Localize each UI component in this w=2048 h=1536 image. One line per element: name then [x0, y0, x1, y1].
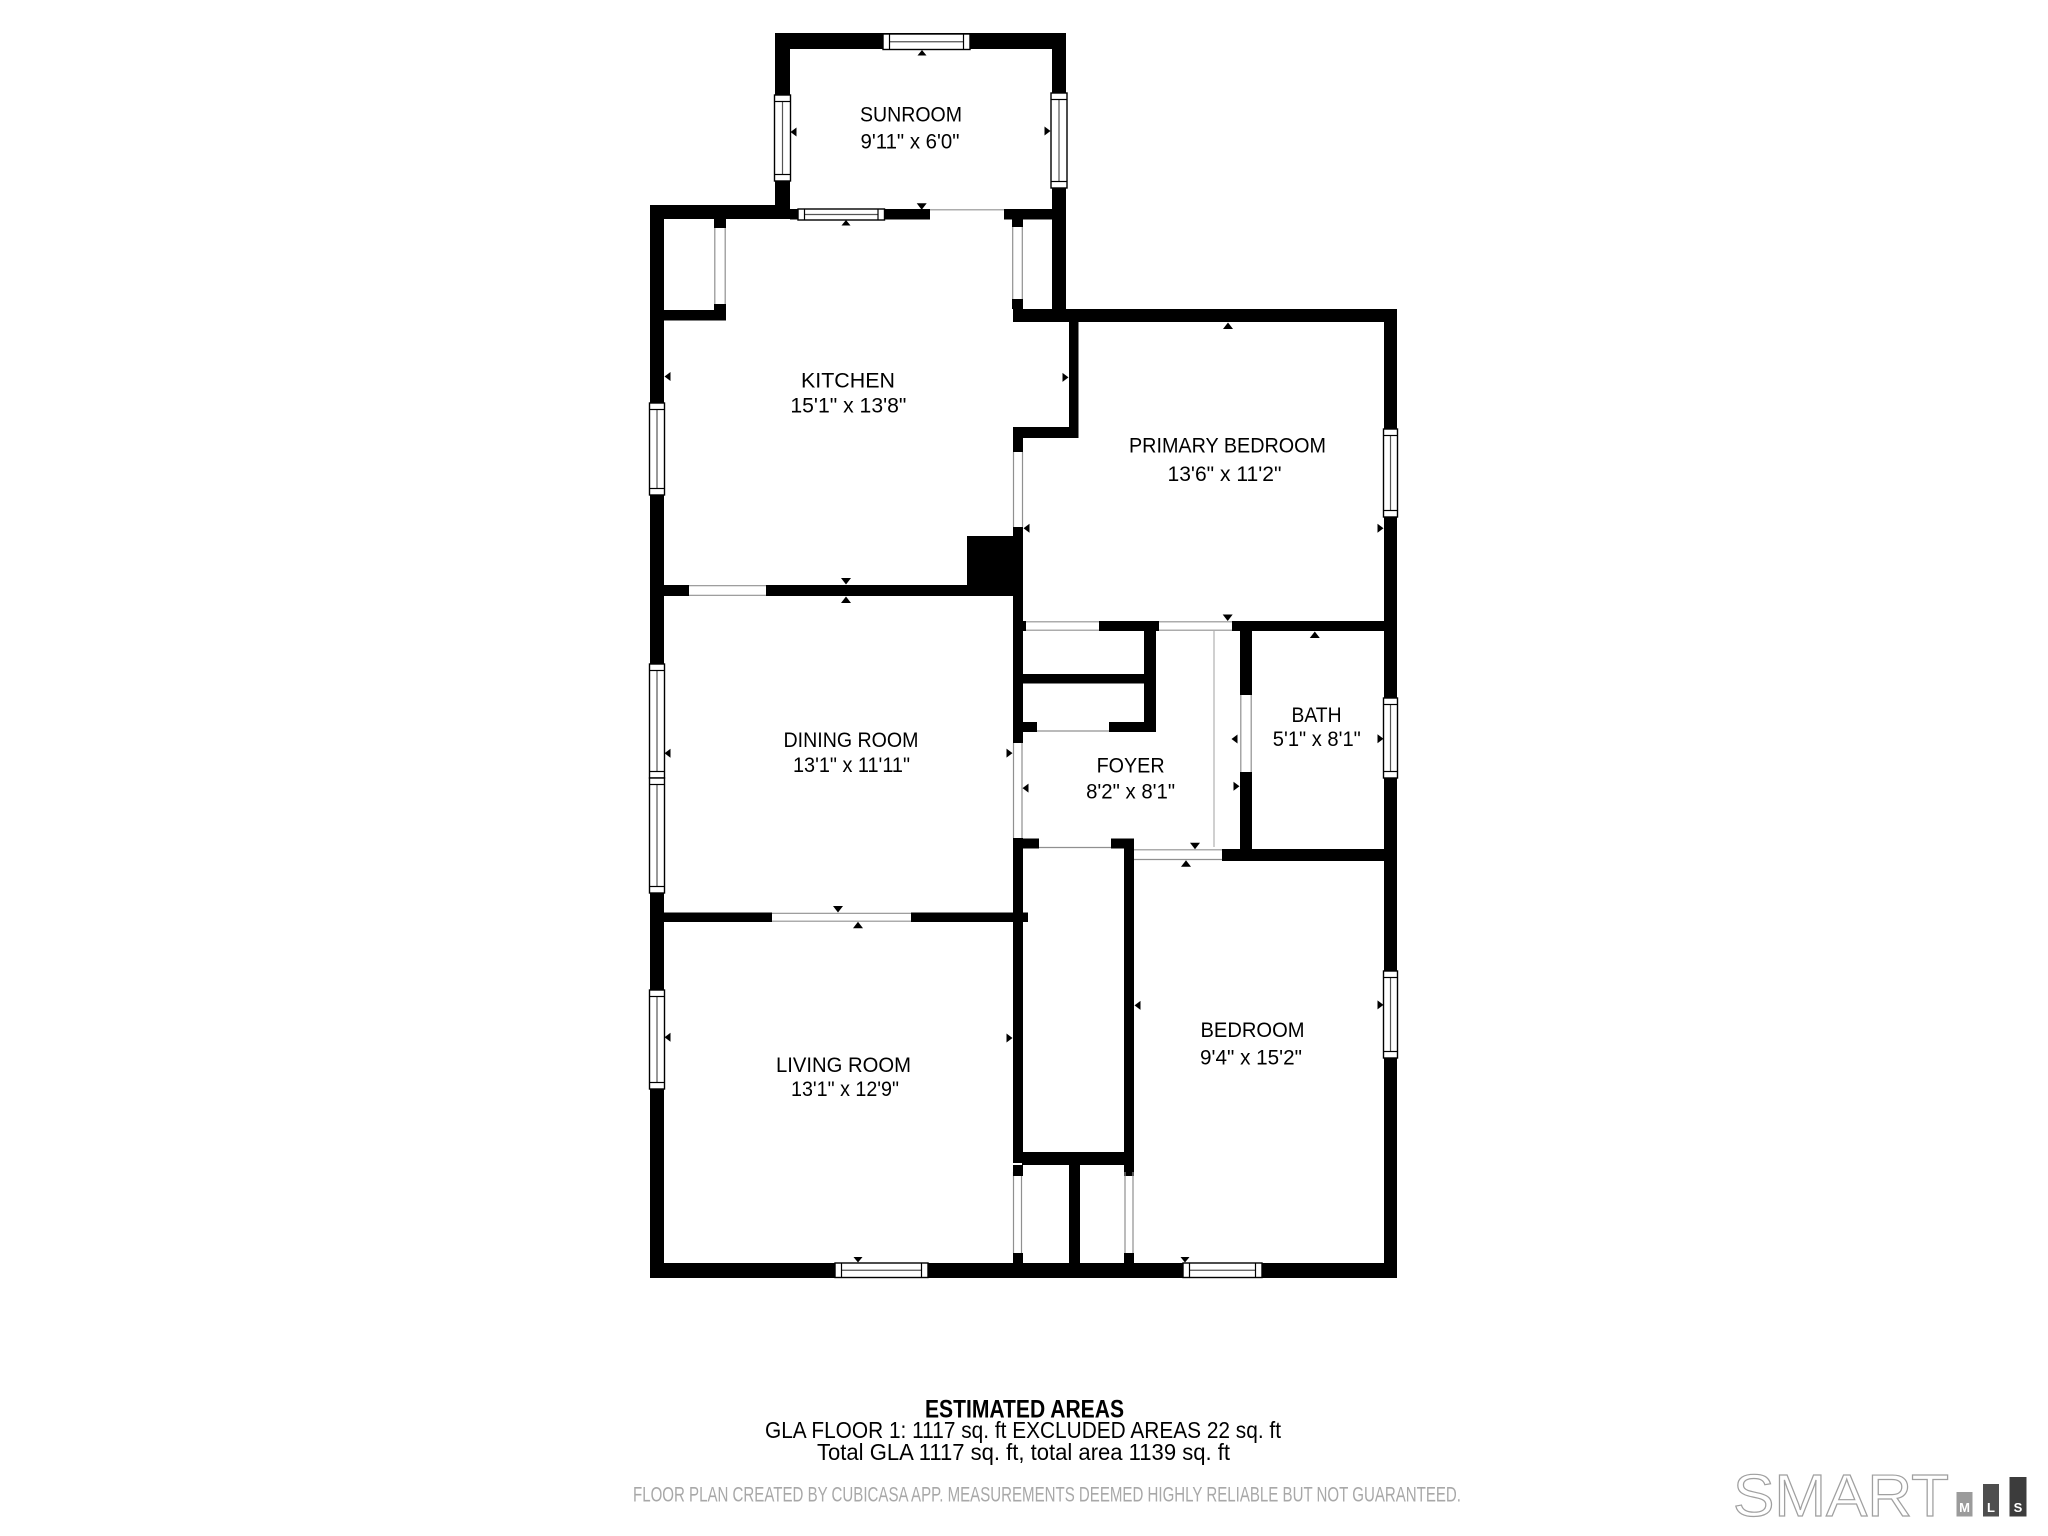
svg-text:SUNROOM: SUNROOM [860, 104, 962, 127]
svg-text:Total GLA 1117 sq. ft, total a: Total GLA 1117 sq. ft, total area 1139 s… [817, 1439, 1231, 1465]
svg-text:8'2" x 8'1": 8'2" x 8'1" [1086, 781, 1175, 804]
svg-text:S: S [2014, 1500, 2023, 1515]
svg-text:KITCHEN: KITCHEN [801, 370, 895, 393]
svg-text:15'1" x 13'8": 15'1" x 13'8" [790, 395, 906, 418]
svg-text:SMART: SMART [1733, 1463, 1949, 1529]
svg-text:9'4" x 15'2": 9'4" x 15'2" [1200, 1047, 1302, 1070]
svg-text:FLOOR PLAN CREATED BY CUBICASA: FLOOR PLAN CREATED BY CUBICASA APP. MEAS… [633, 1484, 1461, 1507]
svg-text:13'1" x 12'9": 13'1" x 12'9" [791, 1078, 899, 1101]
svg-text:13'1" x 11'11": 13'1" x 11'11" [793, 754, 910, 777]
svg-text:M: M [1959, 1500, 1970, 1515]
svg-text:BATH: BATH [1292, 704, 1342, 727]
svg-text:FOYER: FOYER [1097, 754, 1165, 777]
svg-text:L: L [1987, 1500, 1995, 1515]
svg-text:9'11" x 6'0": 9'11" x 6'0" [861, 131, 960, 154]
svg-text:BEDROOM: BEDROOM [1201, 1019, 1305, 1042]
svg-text:PRIMARY BEDROOM: PRIMARY BEDROOM [1129, 435, 1326, 458]
svg-text:13'6" x 11'2": 13'6" x 11'2" [1168, 463, 1282, 486]
svg-text:DINING ROOM: DINING ROOM [784, 729, 919, 752]
svg-text:5'1" x 8'1": 5'1" x 8'1" [1273, 728, 1361, 751]
svg-text:LIVING ROOM: LIVING ROOM [776, 1054, 911, 1077]
